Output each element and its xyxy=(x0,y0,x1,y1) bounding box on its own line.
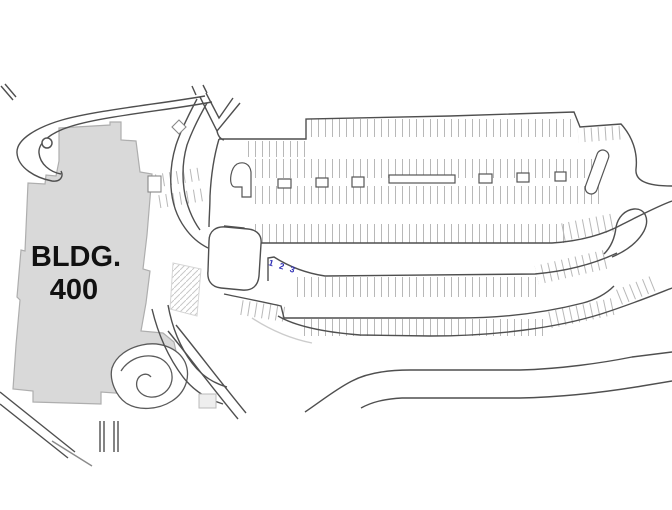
building-side-road-2 xyxy=(183,103,207,230)
turnaround-loop xyxy=(208,227,261,290)
site-plan: BLDG. 400 1 2 3 xyxy=(0,0,672,510)
island-rect-1 xyxy=(278,179,291,188)
island-rect-2 xyxy=(316,178,328,187)
building-label-line2: 400 xyxy=(50,274,98,306)
tree-circle xyxy=(42,138,52,148)
parking-stalls-row-a xyxy=(309,119,574,137)
south-pad-structure xyxy=(199,394,216,408)
stall-numbers-label: 1 2 3 xyxy=(267,257,298,275)
southwest-diagonal-road-3 xyxy=(52,441,92,466)
parking-stalls-row-a-right xyxy=(578,125,625,142)
island-rect-5 xyxy=(517,173,529,182)
building-south-prongs xyxy=(100,421,118,452)
southwest-diagonal-road-2 xyxy=(0,404,68,458)
parking-stalls-row-a-left xyxy=(248,141,306,157)
boot-island xyxy=(231,163,251,197)
parking-stalls-row-d xyxy=(296,277,536,297)
island-rect-3 xyxy=(352,177,364,187)
junction-fork-2 xyxy=(206,93,233,118)
south-road-lower xyxy=(361,381,672,408)
island-rect-6 xyxy=(555,172,566,181)
parking-stalls-row-e-right xyxy=(547,298,617,329)
parking-stalls-row-c xyxy=(249,224,564,243)
building-label-line1: BLDG. xyxy=(31,241,121,273)
parking-stalls-row-d-right xyxy=(535,250,609,285)
site-plan-drawing: BLDG. 400 1 2 3 xyxy=(0,0,672,510)
parking-stalls-row-b-bottom xyxy=(250,186,600,204)
junction-north-stubs xyxy=(192,85,207,95)
northwest-diagonal-mark xyxy=(1,84,16,100)
island-long-median xyxy=(389,175,455,183)
island-rect-4 xyxy=(479,174,492,183)
junction-fork-1 xyxy=(200,97,240,131)
lot-left-edge xyxy=(209,139,219,227)
south-road-upper xyxy=(305,352,672,412)
parking-stalls-row-e xyxy=(300,319,545,336)
diamond-structure xyxy=(172,120,186,134)
utility-structure xyxy=(148,176,161,192)
crosswalk-hatch xyxy=(170,263,201,316)
